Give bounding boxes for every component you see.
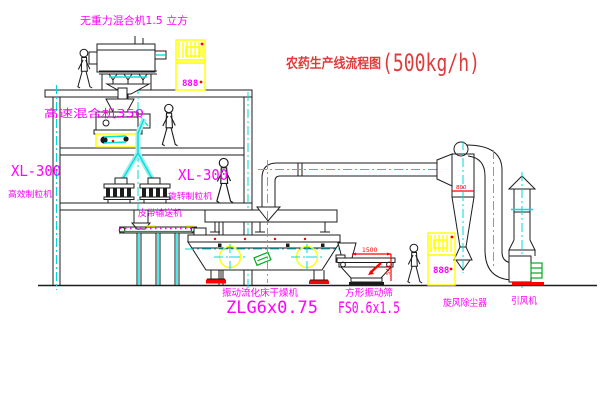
label-high-speed-mixer: 高速混合机350 [44, 106, 144, 120]
title-capacity: (500kg/h) [382, 49, 480, 77]
label-sieve-model: FS0.6x1.5 [338, 298, 400, 317]
control-cabinet-right: 888 [428, 233, 455, 285]
label-granulator-left-model: XL-300 [11, 162, 61, 180]
label-granulator-right-model: XL-300 [178, 166, 228, 184]
diagram-title: 农药生产线流程图 (500kg/h) [285, 49, 480, 77]
label-cyclone: 旋风除尘器 [443, 297, 487, 309]
cyclone-outlet-dimension: 800 [456, 185, 467, 191]
fluid-bed-dryer [185, 207, 345, 284]
granulator-left [104, 178, 134, 203]
square-vibrating-sieve: 1500 541 [336, 243, 395, 285]
person-figure-4 [408, 244, 422, 283]
control-cabinet-top: 888 [176, 40, 205, 90]
sieve-length-dimension: 1500 [362, 247, 377, 254]
label-gravity-mixer: 无重力混合机1.5 立方 [80, 14, 188, 27]
cabinet-right-display: 888 [433, 266, 449, 276]
flow-diagram-svg: 888 [0, 0, 600, 403]
induced-draft-fan [509, 256, 544, 286]
label-dryer-model: ZLG6x0.75 [226, 298, 318, 318]
label-belt-conveyor: 皮带输送机 [138, 207, 182, 219]
label-granulator-left-name: 高效制粒机 [8, 189, 53, 200]
granulator-right [140, 178, 170, 203]
cabinet-top-display: 888 [182, 79, 198, 89]
title-text: 农药生产线流程图 [285, 55, 381, 72]
process-flow-drawing: 888 [0, 0, 600, 403]
sieve-height-dimension: 541 [386, 265, 392, 276]
label-granulator-right-name: 旋转制粒机 [168, 191, 213, 202]
label-fan: 引风机 [511, 295, 537, 307]
person-figure-2 [162, 104, 177, 145]
